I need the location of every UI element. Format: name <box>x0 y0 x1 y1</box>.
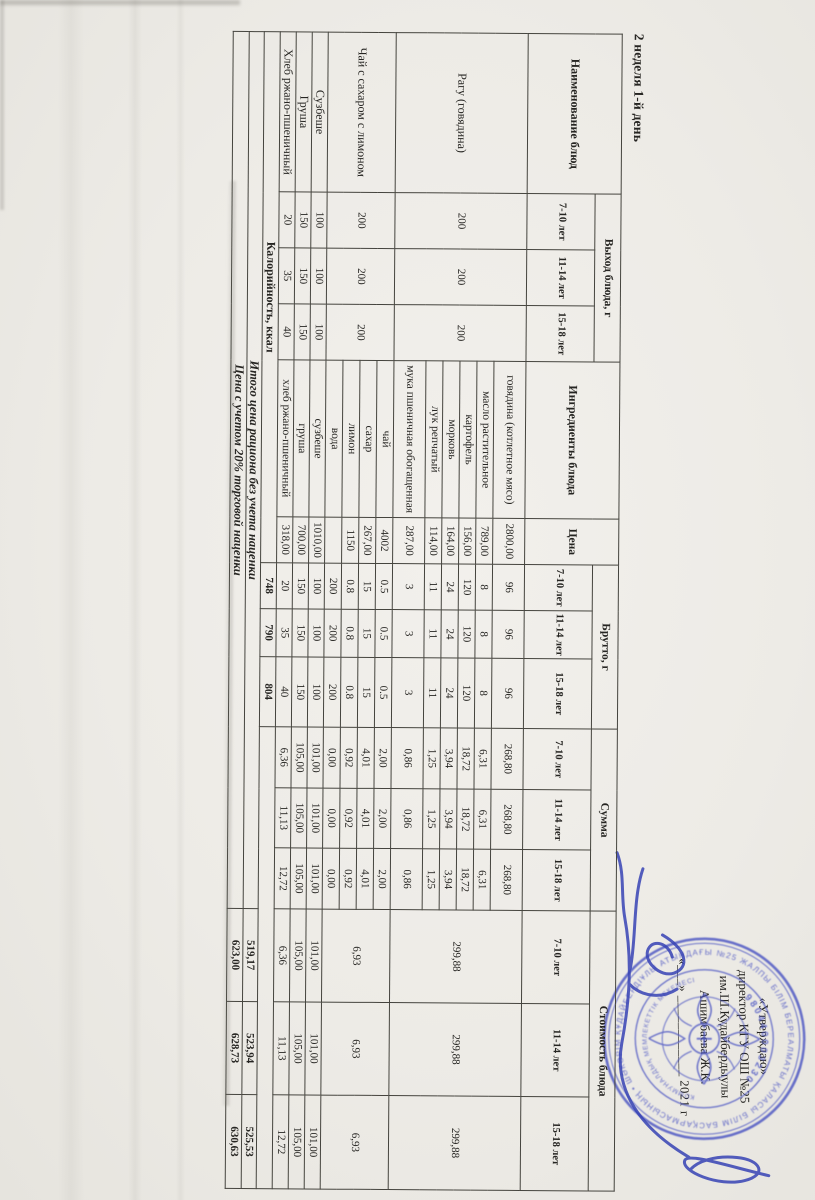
cell-price: 267,00 <box>359 517 376 563</box>
cell-brutto: 150 <box>292 563 308 609</box>
calories-value: 790 <box>260 609 276 657</box>
cell-ingredient: хлеб ржано-пшеничный <box>277 360 294 517</box>
cell-brutto: 24 <box>441 564 458 610</box>
cell-yield: 100 <box>311 192 327 248</box>
cell-yield: 200 <box>326 304 394 360</box>
header-age: 11-14 лет <box>526 249 594 305</box>
cell-brutto: 20 <box>276 563 292 609</box>
cell-price: 114,00 <box>425 518 442 564</box>
cell-cost: 101,00 <box>305 909 322 1002</box>
scanned-menu-page: «Утверждаю» директор КГУ ОШ №25 им.Ш.Куд… <box>0 0 815 1200</box>
cell-cost: 299,88 <box>389 1003 522 1097</box>
cell-sum: 1,25 <box>422 849 439 910</box>
cell-price: 1150 <box>342 517 359 563</box>
header-cost: Стоимость блюда <box>588 911 616 1191</box>
cell-brutto: 96 <box>492 564 524 610</box>
cell-brutto: 96 <box>491 658 523 728</box>
cell-brutto: 100 <box>307 657 323 727</box>
header-ingredients: Ингредиенты блюда <box>525 361 620 519</box>
cell-sum: 11,13 <box>275 788 291 848</box>
cell-brutto: 96 <box>492 610 524 658</box>
cell-yield: 100 <box>310 248 326 304</box>
cell-brutto: 100 <box>308 563 324 609</box>
cell-ingredient: лук репчатый <box>425 361 443 518</box>
cell-brutto: 150 <box>291 657 307 727</box>
cell-sum: 12,72 <box>274 848 290 909</box>
cell-ingredient: говядина (котлетное мясо) <box>493 361 526 518</box>
cell-yield: 200 <box>394 249 526 306</box>
approval-block: «Утверждаю» директор КГУ ОШ №25 им.Ш.Куд… <box>672 879 776 1195</box>
cell-brutto: 0.8 <box>341 609 358 657</box>
cell-brutto: 11 <box>424 564 441 610</box>
header-age: 11-14 лет <box>521 1004 590 1097</box>
cell-cost: 101,00 <box>304 1095 321 1189</box>
cell-brutto: 15 <box>358 609 375 657</box>
totals-value: 525,53 <box>241 1095 257 1189</box>
cell-brutto: 8 <box>474 658 491 728</box>
cell-yield: 150 <box>294 248 310 304</box>
cell-yield: 150 <box>294 304 310 360</box>
cell-sum: 4,01 <box>357 727 374 788</box>
cell-sum: 6,36 <box>275 727 291 788</box>
cell-sum: 3,94 <box>440 789 457 849</box>
cell-brutto: 150 <box>292 609 308 657</box>
cell-brutto: 200 <box>324 563 341 609</box>
cell-cost: 6,93 <box>321 1002 390 1095</box>
totals-value: 630,63 <box>225 1094 241 1188</box>
header-price: Цена <box>525 518 619 565</box>
cell-brutto: 11 <box>424 610 441 658</box>
cell-brutto: 0.8 <box>341 563 358 609</box>
cell-sum: 6,31 <box>473 849 490 910</box>
calories-value: 804 <box>259 657 275 727</box>
cell-yield: 150 <box>295 192 311 248</box>
cell-brutto: 40 <box>275 657 291 727</box>
header-age: 15-18 лет <box>526 305 594 361</box>
cell-cost: 6,36 <box>273 909 290 1002</box>
header-row-ages: 7-10 лет 11-14 лет 15-18 лет 7-10 лет 11… <box>520 33 596 1191</box>
cell-ingredient: морковь <box>442 361 460 518</box>
cell-sum: 105,00 <box>291 727 307 788</box>
cell-sum: 105,00 <box>291 788 307 848</box>
cell-cost: 105,00 <box>289 909 306 1002</box>
cell-price: 164,00 <box>442 518 459 564</box>
cell-yield: 200 <box>326 248 394 304</box>
header-sum: Сумма <box>590 729 617 911</box>
cell-sum: 6,31 <box>474 728 491 789</box>
cell-cost: 12,72 <box>272 1095 289 1189</box>
cell-cost: 299,88 <box>388 1096 521 1191</box>
cell-ingredient: сахар <box>359 360 377 517</box>
cell-price: 318,00 <box>277 517 293 563</box>
cell-brutto: 8 <box>475 610 492 658</box>
cell-price: 4002 <box>376 517 393 563</box>
cell-brutto: 200 <box>323 657 340 727</box>
header-age: 7-10 лет <box>527 193 595 249</box>
cell-brutto: 11 <box>423 658 440 728</box>
cell-sum: 0,92 <box>339 848 356 909</box>
cell-price: 287,00 <box>393 518 425 564</box>
header-age: 7-10 лет <box>524 564 592 610</box>
header-age: 15-18 лет <box>523 658 591 728</box>
cell-sum: 268,80 <box>490 849 522 910</box>
cell-sum: 0,86 <box>391 728 423 789</box>
cell-dish-name: Груша <box>295 32 312 192</box>
totals-value: 523,94 <box>241 1002 257 1095</box>
cell-brutto: 15 <box>358 563 375 609</box>
cell-yield: 35 <box>278 248 294 304</box>
cell-sum: 0,00 <box>323 727 340 788</box>
cell-dish-name: Сузбеше <box>311 32 328 192</box>
cell-dish-name: Рагу (говядина) <box>395 33 528 194</box>
cell-cost: 105,00 <box>289 1002 306 1095</box>
approval-date-line: «___» ____________ 2021 г <box>672 880 695 1195</box>
cell-ingredient: лимон <box>342 360 360 517</box>
document-sheet: «Утверждаю» директор КГУ ОШ №25 им.Ш.Куд… <box>0 0 815 1200</box>
cell-cost: 6,93 <box>321 909 390 1002</box>
cell-dish-name: Хлеб ржано-пшеничный <box>279 32 296 192</box>
cell-sum: 1,25 <box>423 789 440 849</box>
menu-table: Наименование блюд Выход блюда, г Ингреди… <box>225 31 623 1192</box>
header-yield: Выход блюда, г <box>594 194 621 362</box>
cell-brutto: 3 <box>391 658 423 728</box>
cell-sum: 0,86 <box>391 789 423 849</box>
cell-ingredient: мука пшеничная обогащенная <box>393 361 426 518</box>
cell-brutto: 24 <box>441 610 458 658</box>
cell-brutto: 120 <box>458 564 475 610</box>
cell-sum: 0,86 <box>390 849 422 910</box>
cell-sum: 18,72 <box>457 728 474 789</box>
totals-value: 519,17 <box>242 909 258 1002</box>
cell-ingredient: чай <box>376 360 394 517</box>
cell-ingredient: масло растительное <box>476 361 494 518</box>
cell-price: 700,00 <box>293 517 309 563</box>
cell-brutto: 0.5 <box>374 657 391 727</box>
cell-brutto: 3 <box>392 564 424 610</box>
cell-sum: 268,80 <box>491 789 523 849</box>
cell-sum: 18,72 <box>457 789 474 849</box>
cell-price: 1010,00 <box>309 517 325 563</box>
calories-value: 748 <box>260 563 276 609</box>
cell-brutto: 0.8 <box>340 657 357 727</box>
cell-ingredient: сузбеше <box>309 360 326 517</box>
cell-cost: 299,88 <box>389 910 522 1004</box>
header-age: 11-14 лет <box>523 789 591 849</box>
header-age: 11-14 лет <box>524 610 592 658</box>
cell-cost: 6,93 <box>320 1095 389 1190</box>
cell-sum: 268,80 <box>491 728 523 789</box>
cell-sum: 0,92 <box>340 727 357 788</box>
cell-price: 789,00 <box>476 518 493 564</box>
cell-price: 156,00 <box>459 518 476 564</box>
cell-cost: 11,13 <box>273 1002 290 1095</box>
cell-sum: 3,94 <box>439 849 456 910</box>
cell-ingredient: вода <box>325 360 343 517</box>
header-brutto: Брутто, г <box>591 565 618 729</box>
header-age: 7-10 лет <box>521 911 590 1004</box>
cell-sum: 4,01 <box>356 848 373 909</box>
cell-brutto: 0.5 <box>375 609 392 657</box>
cell-brutto: 35 <box>276 609 292 657</box>
cell-brutto: 24 <box>440 658 457 728</box>
cell-cost: 101,00 <box>305 1002 322 1095</box>
cell-price <box>325 517 342 563</box>
cell-sum: 6,31 <box>474 789 491 849</box>
cell-ingredient: груша <box>293 360 310 517</box>
cell-brutto: 120 <box>458 610 475 658</box>
cell-dish-name: Чай с сахаром с лимоном <box>327 32 396 192</box>
cell-yield: 40 <box>278 304 294 360</box>
cell-sum: 2,00 <box>374 788 391 848</box>
cell-brutto: 3 <box>392 610 424 658</box>
cell-brutto: 120 <box>457 658 474 728</box>
cell-sum: 101,00 <box>307 727 323 788</box>
cell-ingredient: картофель <box>459 361 477 518</box>
header-age: 15-18 лет <box>522 849 590 911</box>
cell-sum: 2,00 <box>374 727 391 788</box>
cell-brutto: 100 <box>308 609 324 657</box>
cell-sum: 0,00 <box>322 848 339 909</box>
cell-yield: 200 <box>395 193 527 250</box>
cell-brutto: 0.5 <box>375 563 392 609</box>
cell-brutto: 15 <box>357 657 374 727</box>
cell-yield: 20 <box>279 192 295 248</box>
cell-sum: 18,72 <box>456 849 473 910</box>
header-age: 15-18 лет <box>520 1097 589 1192</box>
cell-sum: 1,25 <box>423 728 440 789</box>
cell-sum: 0,00 <box>323 788 340 848</box>
cell-price: 2800,00 <box>493 518 525 564</box>
header-dish-name: Наименование блюд <box>527 33 622 194</box>
empty-cell <box>256 727 275 1189</box>
cell-sum: 101,00 <box>306 848 322 909</box>
cell-sum: 101,00 <box>307 788 323 848</box>
cell-sum: 2,00 <box>373 848 390 909</box>
page-title: 2 неделя 1-й день <box>630 34 647 142</box>
cell-cost: 105,00 <box>288 1095 305 1189</box>
cell-yield: 100 <box>310 304 326 360</box>
cell-brutto: 200 <box>324 609 341 657</box>
cell-yield: 200 <box>327 192 395 248</box>
header-age: 7-10 лет <box>523 728 591 789</box>
cell-sum: 0,92 <box>340 788 357 848</box>
cell-yield: 200 <box>394 305 526 362</box>
cell-sum: 105,00 <box>290 848 306 909</box>
cell-brutto: 8 <box>475 564 492 610</box>
cell-sum: 4,01 <box>357 788 374 848</box>
cell-sum: 3,94 <box>440 728 457 789</box>
